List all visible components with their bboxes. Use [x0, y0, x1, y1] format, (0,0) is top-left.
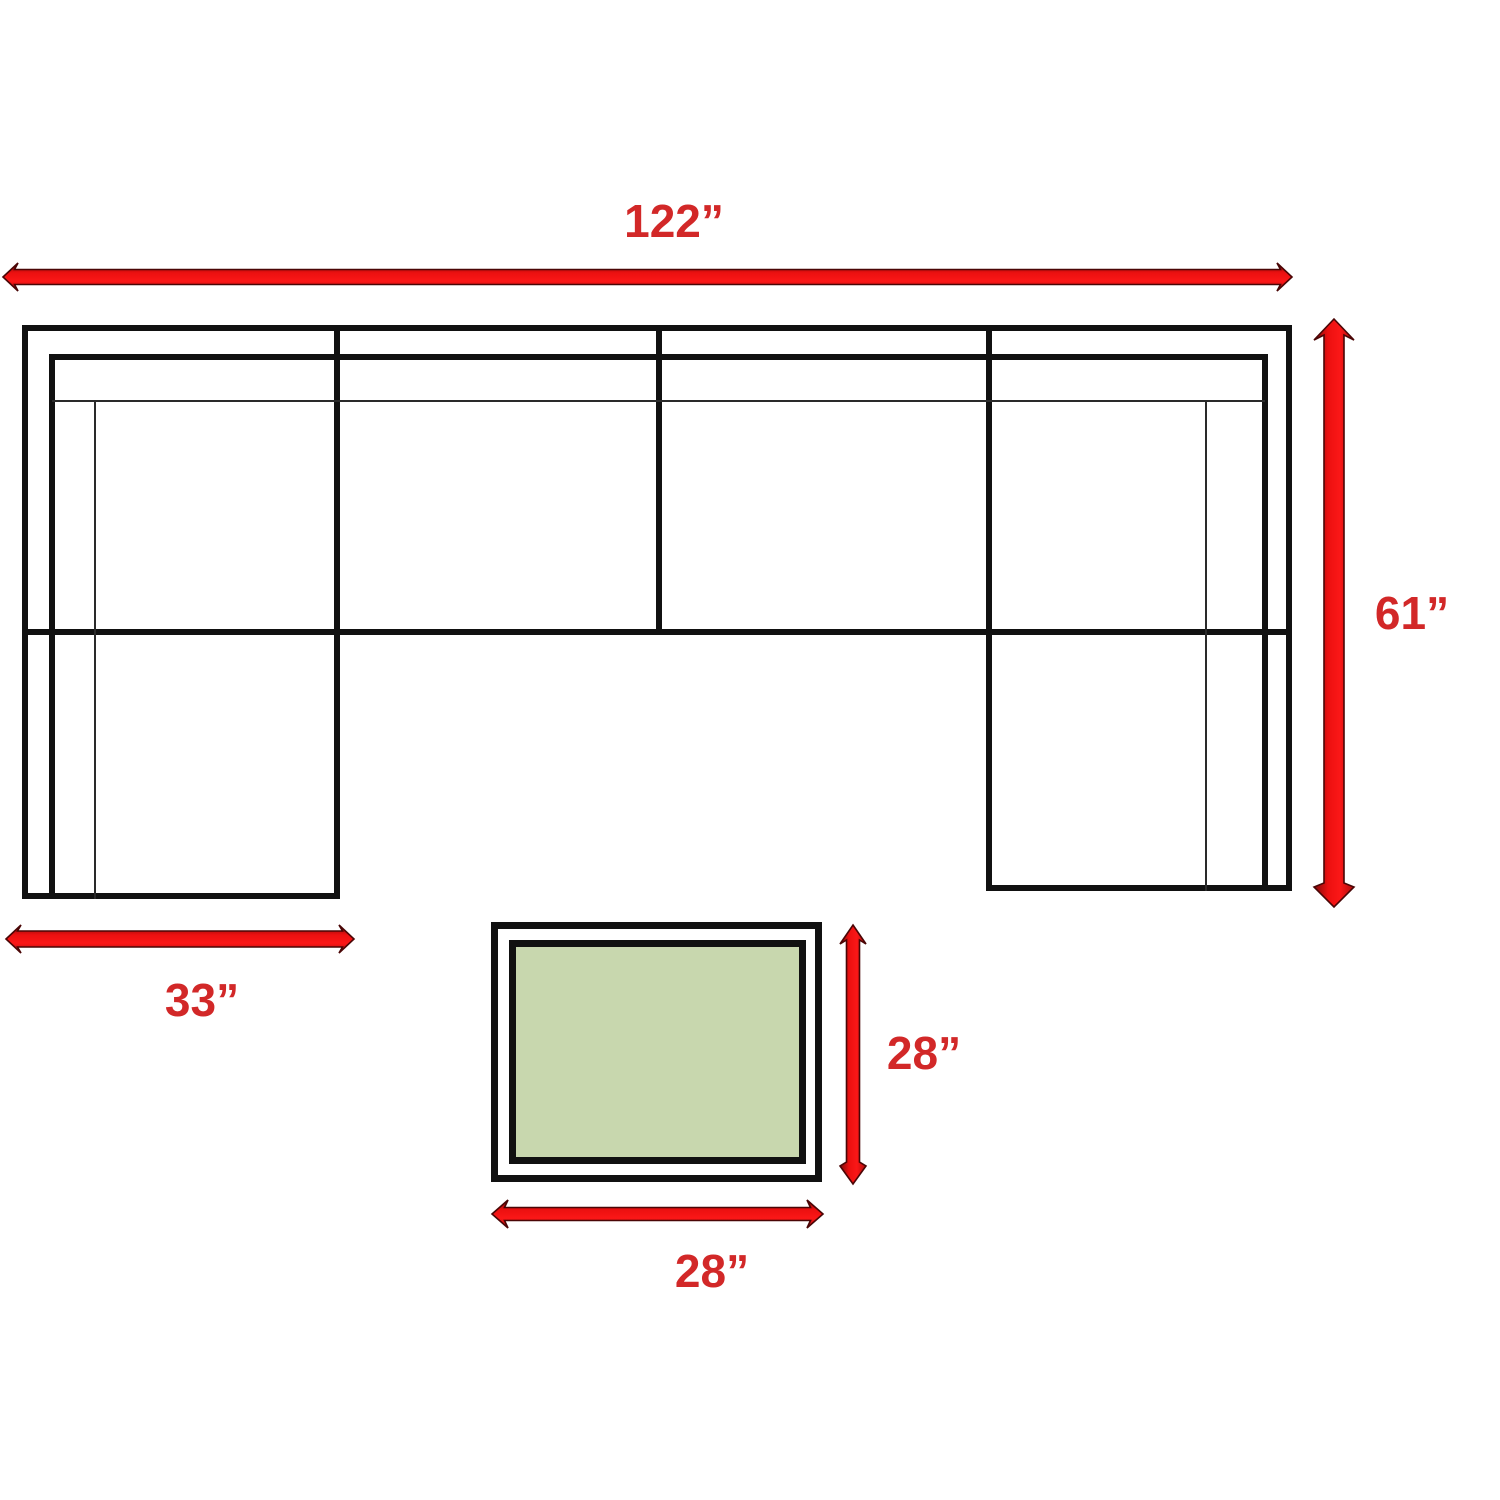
svg-text:28”: 28”	[887, 1027, 961, 1079]
svg-text:61”: 61”	[1375, 587, 1449, 639]
svg-text:28”: 28”	[675, 1245, 749, 1297]
svg-text:122”: 122”	[624, 195, 724, 247]
svg-text:33”: 33”	[165, 974, 239, 1026]
